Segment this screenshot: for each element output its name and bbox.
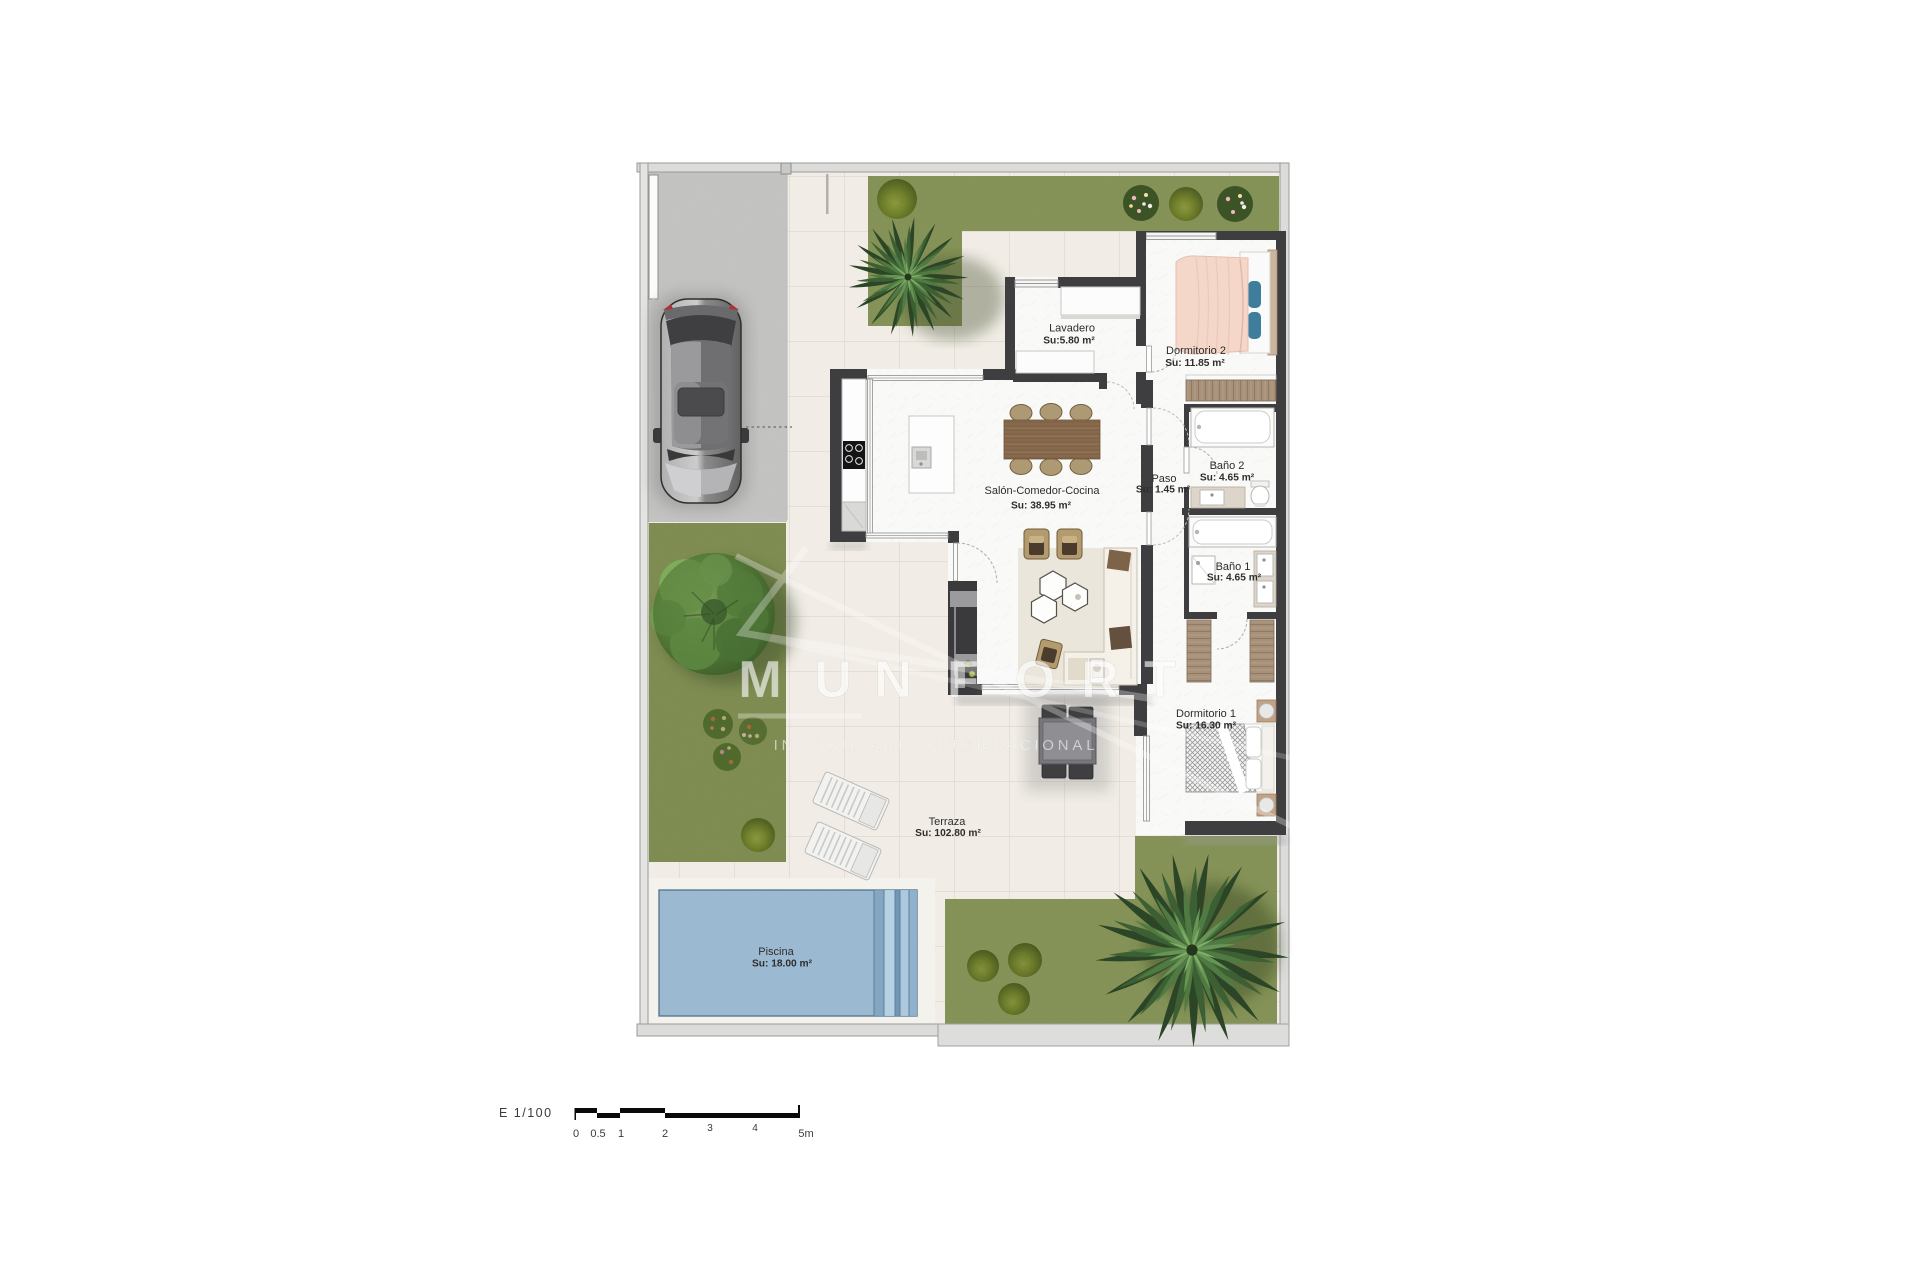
svg-text:4: 4 — [752, 1123, 758, 1134]
svg-text:N: N — [874, 651, 912, 709]
svg-text:Su: 1.45 m²: Su: 1.45 m² — [1136, 485, 1191, 496]
svg-text:Lavadero: Lavadero — [1049, 323, 1095, 335]
svg-text:Su: 18.00 m²: Su: 18.00 m² — [752, 959, 813, 970]
svg-text:F: F — [947, 651, 979, 709]
svg-text:Su: 4.65 m²: Su: 4.65 m² — [1200, 473, 1255, 484]
svg-text:0.5: 0.5 — [590, 1128, 605, 1140]
svg-text:5m: 5m — [798, 1128, 813, 1140]
svg-text:U: U — [814, 651, 852, 709]
svg-text:M: M — [738, 651, 781, 709]
svg-text:Dormitorio 2: Dormitorio 2 — [1166, 345, 1226, 357]
svg-text:Su: 16.30 m²: Su: 16.30 m² — [1176, 721, 1237, 732]
svg-text:2: 2 — [662, 1128, 668, 1140]
svg-text:Su: 102.80 m²: Su: 102.80 m² — [915, 828, 981, 839]
svg-text:Su:5.80 m²: Su:5.80 m² — [1043, 336, 1095, 347]
svg-text:T: T — [1144, 651, 1176, 709]
svg-text:Paso: Paso — [1151, 473, 1176, 485]
svg-text:Su: 11.85 m²: Su: 11.85 m² — [1165, 358, 1225, 369]
svg-text:O: O — [1015, 651, 1055, 709]
svg-text:1: 1 — [618, 1128, 624, 1140]
svg-text:Baño 2: Baño 2 — [1210, 460, 1245, 472]
svg-text:Dormitorio 1: Dormitorio 1 — [1176, 708, 1236, 720]
svg-text:0: 0 — [573, 1128, 579, 1140]
svg-text:R: R — [1081, 651, 1119, 709]
svg-text:Baño 1: Baño 1 — [1216, 561, 1251, 573]
svg-text:3: 3 — [707, 1123, 713, 1134]
svg-text:Salón-Comedor-Cocina: Salón-Comedor-Cocina — [985, 485, 1101, 497]
svg-text:E 1/100: E 1/100 — [499, 1106, 553, 1120]
svg-text:Su: 4.65 m²: Su: 4.65 m² — [1207, 573, 1262, 584]
svg-text:INMOBILIARIA INTERNACIONAL: INMOBILIARIA INTERNACIONAL — [774, 737, 1099, 754]
svg-text:Su: 38.95 m²: Su: 38.95 m² — [1011, 501, 1072, 512]
svg-text:Terraza: Terraza — [929, 816, 967, 828]
svg-text:Piscina: Piscina — [758, 946, 794, 958]
